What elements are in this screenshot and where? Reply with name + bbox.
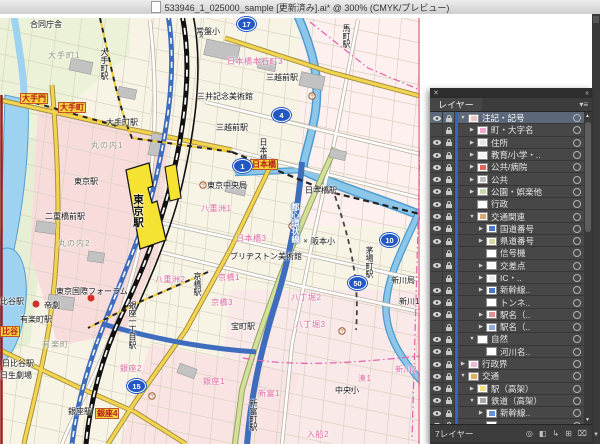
target-circle-icon[interactable]	[570, 274, 584, 282]
layer-name[interactable]: トンネ..	[500, 297, 570, 309]
window-titlebar[interactable]: 533946_1_025000_sample [更新済み].ai* @ 300%…	[0, 0, 600, 15]
panel-top-bar: ✕ »	[430, 88, 592, 98]
layer-thumbnail[interactable]	[477, 163, 488, 172]
indent-spacer	[458, 173, 467, 185]
panel-scroll-down-icon[interactable]: ▼	[585, 417, 590, 423]
indent-spacer	[458, 260, 476, 272]
layer-row[interactable]: ▼ 交通	[430, 370, 584, 382]
layer-rows-viewport: ▼ 注記・記号 ▶ 町・大字名 ▶ 住所 ▶ 教育/小学・.. ▶	[430, 112, 592, 424]
layer-thumbnail[interactable]	[477, 187, 488, 196]
layer-row[interactable]: ▶ 駅名（..	[430, 309, 584, 321]
tab-layers[interactable]: レイヤー	[430, 98, 482, 111]
panel-close-icon[interactable]: ✕	[433, 89, 439, 97]
layer-name[interactable]: 公共/病院	[491, 161, 570, 173]
svg-text:〒: 〒	[290, 224, 295, 230]
target-circle-icon[interactable]	[570, 139, 584, 147]
lock-icon[interactable]	[443, 223, 455, 235]
layer-name[interactable]: 新幹線..	[500, 284, 570, 296]
disclosure-triangle-icon[interactable]: ▶	[467, 189, 477, 195]
disclosure-triangle-icon[interactable]: ▶	[476, 410, 486, 416]
map-drawing: 〒 〒 〒 〒 〒 ✕✕✕	[0, 14, 430, 444]
visibility-eye-icon[interactable]	[430, 223, 443, 235]
target-circle-icon[interactable]	[570, 213, 584, 221]
indent-spacer	[458, 296, 476, 308]
layer-name[interactable]: 国道番号	[500, 223, 570, 235]
layer-name[interactable]: 鉄道（高架）	[491, 395, 570, 407]
layer-thumbnail[interactable]	[486, 323, 497, 332]
layer-thumbnail[interactable]	[486, 421, 497, 424]
layer-row[interactable]: ▶ 町・大字名	[430, 124, 584, 136]
disclosure-triangle-icon[interactable]: ▶	[476, 226, 486, 232]
target-circle-icon[interactable]	[570, 163, 584, 171]
target-circle-icon[interactable]	[570, 249, 584, 257]
indent-spacer	[458, 186, 467, 198]
layer-name[interactable]: 公共	[491, 174, 570, 186]
visibility-eye-icon[interactable]	[430, 161, 443, 173]
visibility-eye-icon[interactable]	[430, 272, 443, 284]
illustrator-window: 533946_1_025000_sample [更新済み].ai* @ 300%…	[0, 0, 600, 444]
indent-spacer	[458, 383, 467, 395]
layer-name[interactable]: 行政	[491, 198, 570, 210]
indent-spacer	[458, 235, 476, 247]
lock-icon[interactable]	[443, 235, 455, 247]
layer-thumbnail[interactable]	[477, 384, 488, 393]
visibility-eye-icon[interactable]	[430, 284, 443, 296]
layer-name[interactable]: 駅名（..	[500, 309, 570, 321]
indent-spacer	[458, 272, 476, 284]
visibility-eye-icon[interactable]	[430, 124, 443, 136]
layer-row[interactable]: ▼ 自然	[430, 333, 584, 345]
disclosure-triangle-icon[interactable]: ▶	[467, 177, 477, 183]
lock-icon[interactable]	[443, 419, 455, 424]
layer-row[interactable]: ▶ 駅名（..	[430, 321, 584, 333]
layer-name[interactable]: 河川名..	[500, 346, 570, 358]
svg-text:✕: ✕	[303, 239, 308, 245]
layer-name[interactable]: 駅名（..	[500, 321, 570, 333]
visibility-eye-icon[interactable]	[430, 346, 443, 358]
layer-thumbnail[interactable]	[486, 261, 497, 270]
layer-thumbnail[interactable]	[477, 151, 488, 160]
layer-row[interactable]: ▶ IC・..	[430, 272, 584, 284]
target-circle-icon[interactable]	[570, 225, 584, 233]
visibility-eye-icon[interactable]	[430, 370, 443, 382]
target-circle-icon[interactable]	[570, 422, 584, 424]
window-title: 533946_1_025000_sample [更新済み].ai* @ 300%…	[165, 1, 450, 14]
target-circle-icon[interactable]	[570, 348, 584, 356]
target-circle-icon[interactable]	[570, 299, 584, 307]
create-new-sublayer-icon[interactable]: ↳	[552, 429, 559, 438]
indent-spacer	[458, 321, 476, 333]
layer-thumbnail[interactable]	[468, 114, 479, 123]
layer-name[interactable]: 交通	[482, 370, 570, 382]
create-new-layer-icon[interactable]: ⊞	[565, 429, 572, 438]
indent-spacer	[458, 124, 467, 136]
layer-thumbnail[interactable]	[486, 237, 497, 246]
layer-list: ▼ 注記・記号 ▶ 町・大字名 ▶ 住所 ▶ 教育/小学・.. ▶	[430, 112, 584, 424]
panel-menu-icon[interactable]: ▾≡	[579, 100, 592, 109]
lock-icon[interactable]	[443, 309, 455, 321]
layer-thumbnail[interactable]	[486, 224, 497, 233]
indent-spacer	[458, 247, 476, 259]
disclosure-triangle-icon[interactable]: ▶	[467, 127, 477, 133]
visibility-eye-icon[interactable]	[430, 296, 443, 308]
svg-text:✕: ✕	[199, 34, 204, 40]
disclosure-triangle-icon[interactable]: ▶	[467, 140, 477, 146]
lock-icon[interactable]	[443, 284, 455, 296]
layer-thumbnail[interactable]	[477, 138, 488, 147]
layer-name[interactable]: 交差点	[500, 260, 570, 272]
layer-row[interactable]: 河川名..	[430, 346, 584, 358]
target-circle-icon[interactable]	[570, 286, 584, 294]
visibility-eye-icon[interactable]	[430, 247, 443, 259]
visibility-eye-icon[interactable]	[430, 137, 443, 149]
layer-row[interactable]: ▶ 住所	[430, 137, 584, 149]
lock-icon[interactable]	[443, 186, 455, 198]
layer-row[interactable]: ▶ 教育/小学・..	[430, 149, 584, 161]
disclosure-triangle-icon[interactable]: ▶	[467, 164, 477, 170]
layer-thumbnail[interactable]	[477, 200, 488, 209]
svg-text:✕: ✕	[349, 387, 354, 393]
indent-spacer	[458, 333, 467, 345]
disclosure-triangle-icon[interactable]: ▶	[467, 386, 477, 392]
visibility-eye-icon[interactable]	[430, 333, 443, 345]
layer-name[interactable]: 公園・娯楽他	[491, 186, 570, 198]
layer-count: 7レイヤー	[435, 428, 473, 440]
lock-icon[interactable]	[443, 260, 455, 272]
visibility-eye-icon[interactable]	[430, 260, 443, 272]
visibility-eye-icon[interactable]	[430, 173, 443, 185]
indent-spacer	[458, 137, 467, 149]
disclosure-triangle-icon[interactable]: ▶	[476, 312, 486, 318]
layer-name[interactable]: 県道番号	[500, 235, 570, 247]
map-artwork: 〒 〒 〒 〒 〒 ✕✕✕ 合同庁舎常盤小大手町1大手町駅大手門大手町大手町駅丸…	[0, 14, 430, 444]
visibility-eye-icon[interactable]	[430, 149, 443, 161]
layer-thumbnail[interactable]	[477, 396, 488, 405]
target-circle-icon[interactable]	[570, 237, 584, 245]
svg-text:〒: 〒	[310, 94, 315, 100]
layer-name[interactable]: 住所	[491, 137, 570, 149]
lock-icon[interactable]	[443, 346, 455, 358]
target-circle-icon[interactable]	[570, 126, 584, 134]
disclosure-triangle-icon[interactable]: ▶	[476, 287, 486, 293]
panel-collapse-icon[interactable]: »	[584, 92, 591, 95]
target-circle-icon[interactable]	[570, 114, 584, 122]
lock-icon[interactable]	[443, 124, 455, 136]
layer-thumbnail[interactable]	[477, 335, 488, 344]
visibility-eye-icon[interactable]	[430, 112, 443, 124]
layer-thumbnail[interactable]	[486, 409, 497, 418]
layer-thumbnail[interactable]	[486, 310, 497, 319]
lock-icon[interactable]	[443, 137, 455, 149]
indent-spacer	[458, 346, 476, 358]
target-circle-icon[interactable]	[570, 200, 584, 208]
layer-row[interactable]: 行政	[430, 198, 584, 210]
layer-row[interactable]: ▼ 鉄道（高架）	[430, 395, 584, 407]
indent-spacer	[458, 149, 467, 161]
lock-icon[interactable]	[443, 407, 455, 419]
indent-spacer	[458, 284, 476, 296]
target-circle-icon[interactable]	[570, 360, 584, 368]
layer-thumbnail[interactable]	[477, 126, 488, 135]
disclosure-triangle-icon[interactable]: ▶	[476, 275, 486, 281]
panel-scroll-thumb[interactable]	[585, 122, 591, 232]
layers-panel: ✕ » レイヤー ▾≡ ▼ 注記・記号 ▶ 町・大字名 ▶ 住所	[430, 88, 592, 444]
layer-row[interactable]: ▶ 公園・娯楽他	[430, 186, 584, 198]
layer-name[interactable]: 行政界	[482, 358, 570, 370]
layer-row[interactable]: ▶ 公共	[430, 173, 584, 185]
layer-row[interactable]: ▶ 県道番号	[430, 235, 584, 247]
indent-spacer	[458, 419, 476, 424]
target-circle-icon[interactable]	[570, 335, 584, 343]
lock-icon[interactable]	[443, 149, 455, 161]
lock-icon[interactable]	[443, 321, 455, 333]
layer-row[interactable]: ▶ 国道番号	[430, 223, 584, 235]
disclosure-triangle-icon[interactable]: ▼	[467, 214, 477, 220]
layer-row[interactable]	[430, 419, 584, 424]
lock-icon[interactable]	[443, 173, 455, 185]
layer-row[interactable]: ▼ 交通関連	[430, 210, 584, 222]
layer-thumbnail[interactable]	[468, 372, 479, 381]
disclosure-triangle-icon[interactable]: ▼	[458, 373, 468, 379]
disclosure-triangle-icon[interactable]: ▶	[476, 238, 486, 244]
indent-spacer	[458, 309, 476, 321]
layer-row[interactable]: ▶ 新幹線..	[430, 407, 584, 419]
panel-tab-bar: レイヤー ▾≡	[430, 98, 592, 112]
layer-name[interactable]: 交通関連	[491, 211, 570, 223]
lock-icon[interactable]	[443, 272, 455, 284]
target-circle-icon[interactable]	[570, 323, 584, 331]
layer-name[interactable]: 注記・記号	[482, 112, 570, 124]
target-circle-icon[interactable]	[570, 311, 584, 319]
lock-icon[interactable]	[443, 333, 455, 345]
visibility-eye-icon[interactable]	[430, 210, 443, 222]
visibility-eye-icon[interactable]	[430, 407, 443, 419]
disclosure-triangle-icon[interactable]: ▼	[467, 336, 477, 342]
layer-thumbnail[interactable]	[486, 286, 497, 295]
layer-name[interactable]: 新幹線..	[500, 407, 570, 419]
panel-bottom-bar: 7レイヤー ◎◧↳⊞⌧	[430, 424, 592, 442]
layer-thumbnail[interactable]	[486, 347, 497, 356]
visibility-eye-icon[interactable]	[430, 358, 443, 370]
target-circle-icon[interactable]	[570, 176, 584, 184]
layer-thumbnail[interactable]	[468, 360, 479, 369]
lock-icon[interactable]	[443, 210, 455, 222]
lock-icon[interactable]	[443, 296, 455, 308]
disclosure-triangle-icon[interactable]: ▶	[476, 324, 486, 330]
target-circle-icon[interactable]	[570, 188, 584, 196]
disclosure-triangle-icon[interactable]: ▼	[467, 398, 477, 404]
indent-spacer	[458, 407, 476, 419]
visibility-eye-icon[interactable]	[430, 383, 443, 395]
indent-spacer	[458, 210, 467, 222]
indent-spacer	[458, 395, 467, 407]
panel-scrollbar[interactable]: ▲ ▼	[584, 112, 592, 424]
visibility-eye-icon[interactable]	[430, 395, 443, 407]
scrollbar-down-arrow-icon[interactable]: ▼	[593, 432, 599, 438]
visibility-eye-icon[interactable]	[430, 419, 443, 424]
layer-thumbnail[interactable]	[486, 249, 497, 258]
layer-row[interactable]: ▶ 駅（高架）	[430, 383, 584, 395]
delete-selection-icon[interactable]: ⌧	[578, 429, 587, 438]
disclosure-triangle-icon[interactable]: ▼	[458, 115, 468, 121]
lock-icon[interactable]	[443, 358, 455, 370]
layer-row[interactable]: トンネ..	[430, 296, 584, 308]
disclosure-triangle-icon[interactable]: ▶	[458, 361, 468, 367]
layer-row[interactable]: ▶ 公共/病院	[430, 161, 584, 173]
layer-name[interactable]: 信号機	[500, 247, 570, 259]
indent-spacer	[458, 223, 476, 235]
target-circle-icon[interactable]	[570, 385, 584, 393]
lock-icon[interactable]	[443, 395, 455, 407]
indent-spacer	[458, 161, 467, 173]
layer-thumbnail[interactable]	[486, 274, 497, 283]
disclosure-triangle-icon[interactable]: ▶	[467, 152, 477, 158]
svg-text:〒: 〒	[340, 329, 345, 335]
layer-name[interactable]: 教育/小学・..	[491, 149, 570, 161]
document-icon	[151, 1, 161, 13]
layer-name[interactable]: 自然	[491, 333, 570, 345]
scrollbar-top-button[interactable]	[593, 16, 599, 23]
visibility-eye-icon[interactable]	[430, 186, 443, 198]
panel-scroll-up-icon[interactable]: ▲	[585, 113, 590, 119]
visibility-eye-icon[interactable]	[430, 309, 443, 321]
make-clipping-mask-icon[interactable]: ◧	[539, 429, 547, 438]
layer-row[interactable]: ▶ 新幹線..	[430, 284, 584, 296]
target-circle-icon[interactable]	[570, 397, 584, 405]
disclosure-triangle-icon[interactable]: ▶	[476, 263, 486, 269]
svg-text:〒: 〒	[150, 394, 155, 400]
window-scrollbar[interactable]: ▼	[592, 14, 600, 444]
layer-thumbnail[interactable]	[477, 212, 488, 221]
layer-thumbnail[interactable]	[486, 298, 497, 307]
lock-icon[interactable]	[443, 161, 455, 173]
locate-object-icon[interactable]: ◎	[526, 429, 533, 438]
visibility-eye-icon[interactable]	[430, 321, 443, 333]
layer-row[interactable]: ▼ 注記・記号	[430, 112, 584, 124]
layer-thumbnail[interactable]	[477, 175, 488, 184]
layer-name[interactable]: 駅（高架）	[491, 383, 570, 395]
lock-icon[interactable]	[443, 247, 455, 259]
layer-row[interactable]: ▶ 交差点	[430, 260, 584, 272]
lock-icon[interactable]	[443, 112, 455, 124]
lock-icon[interactable]	[443, 198, 455, 210]
layer-row[interactable]: 信号機	[430, 247, 584, 259]
target-circle-icon[interactable]	[570, 262, 584, 270]
lock-icon[interactable]	[443, 383, 455, 395]
target-circle-icon[interactable]	[570, 409, 584, 417]
visibility-eye-icon[interactable]	[430, 198, 443, 210]
visibility-eye-icon[interactable]	[430, 235, 443, 247]
layer-name[interactable]: 町・大字名	[491, 124, 570, 136]
lock-icon[interactable]	[443, 370, 455, 382]
target-circle-icon[interactable]	[570, 372, 584, 380]
layer-name[interactable]: IC・..	[500, 272, 570, 284]
svg-text:〒: 〒	[201, 183, 206, 189]
layer-row[interactable]: ▶ 行政界	[430, 358, 584, 370]
panel-bottom-icons: ◎◧↳⊞⌧	[526, 429, 587, 438]
indent-spacer	[458, 198, 467, 210]
target-circle-icon[interactable]	[570, 151, 584, 159]
